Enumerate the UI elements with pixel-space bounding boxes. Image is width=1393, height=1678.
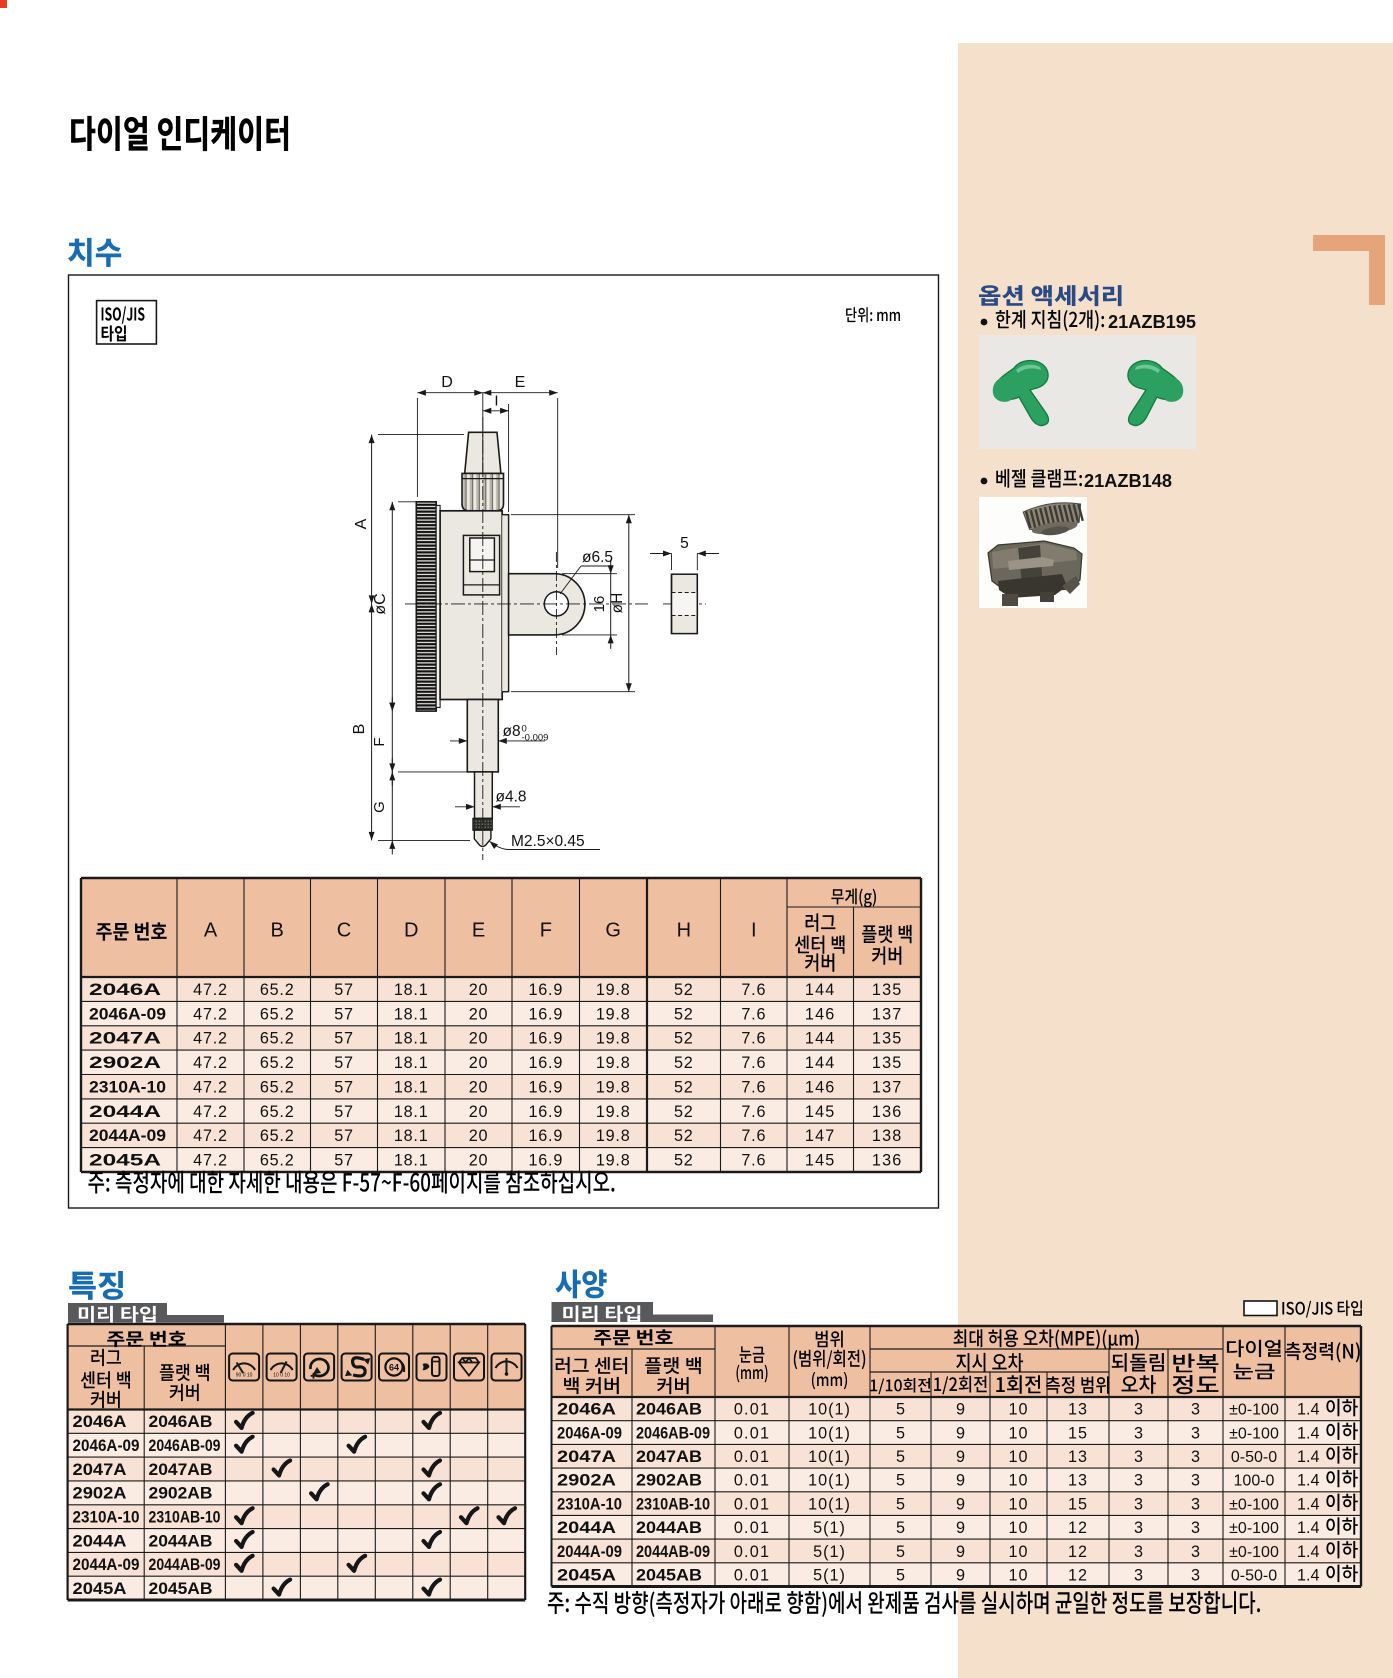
svg-text:137: 137 [872,1005,903,1023]
svg-text:2047A: 2047A [73,1461,127,1479]
svg-text:65.2: 65.2 [260,1030,295,1048]
svg-text:16.9: 16.9 [528,1103,563,1121]
svg-text:2902A: 2902A [557,1472,616,1490]
svg-text:ø6.5: ø6.5 [582,549,613,566]
svg-text:20: 20 [469,1054,489,1072]
svg-text:2047A: 2047A [557,1448,616,1466]
svg-text:2046A: 2046A [557,1401,616,1419]
svg-text:52: 52 [674,1054,694,1072]
svg-text:10: 10 [1008,1448,1028,1466]
svg-text:2310A-10: 2310A-10 [89,1078,166,1097]
svg-text:G: G [605,920,621,942]
svg-text:5(1): 5(1) [813,1567,846,1585]
svg-text:2044AB-09: 2044AB-09 [149,1556,221,1574]
svg-text:5: 5 [896,1472,905,1490]
svg-text:47.2: 47.2 [193,1079,228,1097]
svg-text:7.6: 7.6 [741,1054,766,1072]
svg-text:65.2: 65.2 [260,1127,295,1145]
svg-text:52: 52 [674,1079,694,1097]
svg-text:16.9: 16.9 [528,1054,563,1072]
svg-text:2044AB: 2044AB [636,1519,702,1537]
svg-text:1.4: 1.4 [1297,1448,1320,1466]
svg-text:2044AB-09: 2044AB-09 [636,1543,710,1561]
svg-text:18.1: 18.1 [394,1054,429,1072]
svg-text:7.6: 7.6 [741,1005,766,1023]
svg-text:0.01: 0.01 [734,1495,770,1513]
svg-text:18.1: 18.1 [394,1127,429,1145]
svg-text:10: 10 [1008,1543,1028,1561]
svg-text:19.8: 19.8 [596,1127,631,1145]
svg-text:47.2: 47.2 [193,1152,228,1170]
svg-text:2902A: 2902A [89,1053,161,1072]
svg-text:0-50-0: 0-50-0 [1231,1568,1277,1585]
svg-text:20: 20 [469,1030,489,1048]
svg-text:3: 3 [1134,1543,1143,1561]
svg-text:12: 12 [1068,1519,1088,1537]
svg-text:3: 3 [1191,1495,1200,1513]
svg-text:57: 57 [334,981,354,999]
svg-text:13: 13 [1068,1448,1088,1466]
svg-text:A: A [353,518,370,529]
svg-text:5: 5 [896,1567,905,1585]
svg-text:1.4: 1.4 [1297,1472,1320,1490]
svg-text:19.8: 19.8 [596,981,631,999]
svg-text:±0-100: ±0-100 [1229,1496,1279,1513]
svg-text:2044A: 2044A [73,1532,127,1550]
svg-text:2310A-10: 2310A-10 [73,1509,140,1527]
svg-text:7.6: 7.6 [741,1103,766,1121]
svg-text:9: 9 [956,1495,965,1513]
svg-text:13: 13 [1068,1472,1088,1490]
svg-text:øH: øH [609,593,626,614]
svg-text:135: 135 [872,1030,903,1048]
svg-text:137: 137 [872,1079,903,1097]
svg-text:2047AB: 2047AB [636,1448,702,1466]
svg-text:57: 57 [334,1103,354,1121]
svg-text:135: 135 [872,981,903,999]
svg-text:52: 52 [674,1152,694,1170]
svg-text:2045AB: 2045AB [149,1580,213,1598]
svg-text:144: 144 [805,1054,836,1072]
svg-text:E: E [515,374,526,391]
svg-text:10: 10 [1008,1401,1028,1419]
svg-text:65.2: 65.2 [260,981,295,999]
svg-text:3: 3 [1191,1401,1200,1419]
svg-text:±0-100: ±0-100 [1229,1544,1279,1561]
svg-text:16.9: 16.9 [528,1030,563,1048]
svg-text:21AZB148: 21AZB148 [1084,471,1172,491]
svg-text:16: 16 [591,596,608,613]
svg-text:52: 52 [674,1103,694,1121]
svg-text:3: 3 [1134,1567,1143,1585]
svg-text:7.6: 7.6 [741,1079,766,1097]
svg-text:144: 144 [805,981,836,999]
svg-text:1.4: 1.4 [1297,1543,1320,1561]
svg-text:15: 15 [1068,1495,1088,1513]
svg-text:13: 13 [1068,1401,1088,1419]
svg-text:47.2: 47.2 [193,981,228,999]
svg-text:138: 138 [872,1127,903,1145]
svg-text:-0.009: -0.009 [522,733,549,744]
svg-text:52: 52 [674,981,694,999]
svg-text:64: 64 [389,1363,399,1373]
svg-text:1.4: 1.4 [1297,1495,1320,1513]
svg-text:2310AB-10: 2310AB-10 [636,1495,710,1513]
svg-text:100-0: 100-0 [1234,1473,1275,1490]
svg-text:3: 3 [1191,1567,1200,1585]
svg-text:5(1): 5(1) [813,1519,846,1537]
svg-text:3: 3 [1134,1519,1143,1537]
svg-text:18.1: 18.1 [394,1030,429,1048]
svg-text:5: 5 [896,1424,905,1442]
svg-text:146: 146 [805,1005,836,1023]
svg-text:2045AB: 2045AB [636,1567,702,1585]
svg-text:2046A-09: 2046A-09 [89,1004,166,1023]
svg-text:±0-100: ±0-100 [1229,1425,1279,1442]
svg-text:12: 12 [1068,1567,1088,1585]
svg-text:20: 20 [469,1005,489,1023]
svg-text:21AZB195: 21AZB195 [1108,312,1196,332]
svg-text:10(1): 10(1) [808,1448,851,1466]
svg-text:18.1: 18.1 [394,1005,429,1023]
svg-text:65.2: 65.2 [260,1152,295,1170]
svg-text:47.2: 47.2 [193,1127,228,1145]
svg-text:19.8: 19.8 [596,1103,631,1121]
svg-text:52: 52 [674,1127,694,1145]
svg-text:7.6: 7.6 [741,1152,766,1170]
svg-text:19.8: 19.8 [596,1030,631,1048]
svg-text:10: 10 [1008,1472,1028,1490]
svg-text:2046AB-09: 2046AB-09 [149,1437,221,1455]
svg-text:2044A: 2044A [89,1102,161,1121]
svg-text:10 0 10: 10 0 10 [273,1373,290,1379]
svg-text:2044A: 2044A [557,1519,616,1537]
svg-text:18.1: 18.1 [394,1152,429,1170]
svg-text:ø4.8: ø4.8 [496,789,527,806]
svg-text:øC: øC [372,593,389,614]
svg-text:47.2: 47.2 [193,1030,228,1048]
svg-text:9: 9 [956,1543,965,1561]
svg-text:2044A-09: 2044A-09 [73,1556,140,1574]
svg-text:65.2: 65.2 [260,1005,295,1023]
svg-text:57: 57 [334,1127,354,1145]
svg-text:2047AB: 2047AB [149,1461,213,1479]
svg-text:2310A-10: 2310A-10 [557,1495,622,1513]
svg-text:144: 144 [805,1030,836,1048]
svg-text:9: 9 [956,1424,965,1442]
svg-text:10(1): 10(1) [808,1495,851,1513]
svg-text:47.2: 47.2 [193,1103,228,1121]
svg-text:3: 3 [1191,1448,1200,1466]
svg-text:2902AB: 2902AB [149,1485,213,1503]
svg-text:10(1): 10(1) [808,1424,851,1442]
svg-text:19.8: 19.8 [596,1054,631,1072]
svg-text:65.2: 65.2 [260,1103,295,1121]
svg-text:65.2: 65.2 [260,1054,295,1072]
svg-text:0.01: 0.01 [734,1567,770,1585]
svg-text:±0-100: ±0-100 [1229,1402,1279,1419]
svg-text:20: 20 [469,1103,489,1121]
svg-text:136: 136 [872,1152,903,1170]
svg-text:2045A: 2045A [557,1567,616,1585]
svg-text:65.2: 65.2 [260,1079,295,1097]
svg-text:3: 3 [1191,1543,1200,1561]
svg-text:F: F [371,737,388,746]
svg-text:5: 5 [896,1495,905,1513]
svg-text:20: 20 [469,1152,489,1170]
svg-text:5: 5 [896,1543,905,1561]
svg-text:10: 10 [1008,1519,1028,1537]
svg-text:0.01: 0.01 [734,1424,770,1442]
svg-text:20: 20 [469,1127,489,1145]
svg-text:145: 145 [805,1103,836,1121]
svg-text:18.1: 18.1 [394,1079,429,1097]
svg-text:0.01: 0.01 [734,1448,770,1466]
svg-text:57: 57 [334,1054,354,1072]
svg-text:2046AB-09: 2046AB-09 [636,1424,710,1442]
svg-text:9: 9 [956,1472,965,1490]
svg-text:147: 147 [805,1127,836,1145]
svg-text:0-50-0: 0-50-0 [1231,1449,1277,1466]
svg-text:57: 57 [334,1152,354,1170]
svg-text:9: 9 [956,1519,965,1537]
svg-text:146: 146 [805,1079,836,1097]
svg-text:A: A [204,920,218,942]
svg-text:2046A: 2046A [89,980,161,999]
svg-text:0.01: 0.01 [734,1543,770,1561]
svg-text:1.4: 1.4 [1297,1424,1320,1442]
svg-text:10: 10 [1008,1495,1028,1513]
svg-text:B: B [351,724,368,735]
svg-text:1.4: 1.4 [1297,1567,1320,1585]
svg-text:57: 57 [334,1030,354,1048]
svg-text:2044A-09: 2044A-09 [557,1543,622,1561]
svg-text:57: 57 [334,1079,354,1097]
svg-text:18.1: 18.1 [394,981,429,999]
svg-text:10(1): 10(1) [808,1401,851,1419]
svg-text:90 0 10: 90 0 10 [236,1373,253,1379]
svg-text:2902AB: 2902AB [636,1472,702,1490]
svg-text:3: 3 [1134,1424,1143,1442]
svg-text:I: I [494,393,498,410]
svg-text:1.4: 1.4 [1297,1401,1320,1419]
svg-text:2902A: 2902A [73,1485,127,1503]
svg-text:5(1): 5(1) [813,1543,846,1561]
svg-text:I: I [751,920,757,942]
svg-text:2044A-09: 2044A-09 [89,1126,166,1145]
svg-text:B: B [271,920,284,942]
svg-text:2047A: 2047A [89,1029,161,1048]
svg-text:20: 20 [469,981,489,999]
svg-text:ø8: ø8 [503,723,521,740]
svg-text:2046A-09: 2046A-09 [73,1437,140,1455]
svg-text:3: 3 [1134,1401,1143,1419]
svg-text:7.6: 7.6 [741,1127,766,1145]
svg-text:2310AB-10: 2310AB-10 [149,1509,221,1527]
svg-text:9: 9 [956,1567,965,1585]
svg-text:52: 52 [674,1030,694,1048]
svg-text:7.6: 7.6 [741,1030,766,1048]
svg-text:C: C [337,920,351,942]
svg-text:19.8: 19.8 [596,1079,631,1097]
svg-text:D: D [404,920,418,942]
svg-text:5: 5 [896,1401,905,1419]
svg-text:135: 135 [872,1054,903,1072]
svg-text:47.2: 47.2 [193,1054,228,1072]
svg-text:18.1: 18.1 [394,1103,429,1121]
svg-text:10: 10 [1008,1567,1028,1585]
svg-text:9: 9 [956,1401,965,1419]
svg-text:9: 9 [956,1448,965,1466]
svg-text:±0-100: ±0-100 [1229,1520,1279,1537]
svg-text:2045A: 2045A [89,1151,161,1170]
svg-text:0.01: 0.01 [734,1472,770,1490]
svg-text:12: 12 [1068,1543,1088,1561]
svg-text:5: 5 [680,535,689,552]
svg-text:1.4: 1.4 [1297,1519,1320,1537]
svg-text:10: 10 [1008,1424,1028,1442]
svg-text:3: 3 [1134,1472,1143,1490]
svg-text:G: G [371,801,388,813]
svg-text:3: 3 [1191,1472,1200,1490]
svg-text:3: 3 [1191,1424,1200,1442]
svg-text:2046AB: 2046AB [149,1413,213,1431]
svg-text:2046AB: 2046AB [636,1401,702,1419]
svg-text:52: 52 [674,1005,694,1023]
svg-text:47.2: 47.2 [193,1005,228,1023]
svg-text:10(1): 10(1) [808,1472,851,1490]
svg-text:15: 15 [1068,1424,1088,1442]
svg-text:M2.5×0.45: M2.5×0.45 [511,833,585,850]
svg-text:16.9: 16.9 [528,1079,563,1097]
svg-text:2045A: 2045A [73,1580,127,1598]
svg-text:2046A-09: 2046A-09 [557,1424,622,1442]
svg-text:3: 3 [1134,1448,1143,1466]
svg-text:D: D [441,374,453,391]
svg-text:57: 57 [334,1005,354,1023]
svg-text:16.9: 16.9 [528,1005,563,1023]
svg-text:19.8: 19.8 [596,1152,631,1170]
svg-text:0.01: 0.01 [734,1401,770,1419]
svg-text:2046A: 2046A [73,1413,127,1431]
svg-text:16.9: 16.9 [528,1152,563,1170]
svg-text:16.9: 16.9 [528,981,563,999]
svg-text:3: 3 [1134,1495,1143,1513]
svg-text:5: 5 [896,1448,905,1466]
svg-text:136: 136 [872,1103,903,1121]
svg-text:0.01: 0.01 [734,1519,770,1537]
svg-text:145: 145 [805,1152,836,1170]
svg-text:H: H [677,920,691,942]
svg-text:E: E [472,920,485,942]
svg-text:7.6: 7.6 [741,981,766,999]
svg-text:5: 5 [896,1519,905,1537]
svg-text:20: 20 [469,1079,489,1097]
svg-text:3: 3 [1191,1519,1200,1537]
svg-text:F: F [540,920,552,942]
svg-text:2044AB: 2044AB [149,1532,213,1550]
svg-text:19.8: 19.8 [596,1005,631,1023]
svg-text:16.9: 16.9 [528,1127,563,1145]
